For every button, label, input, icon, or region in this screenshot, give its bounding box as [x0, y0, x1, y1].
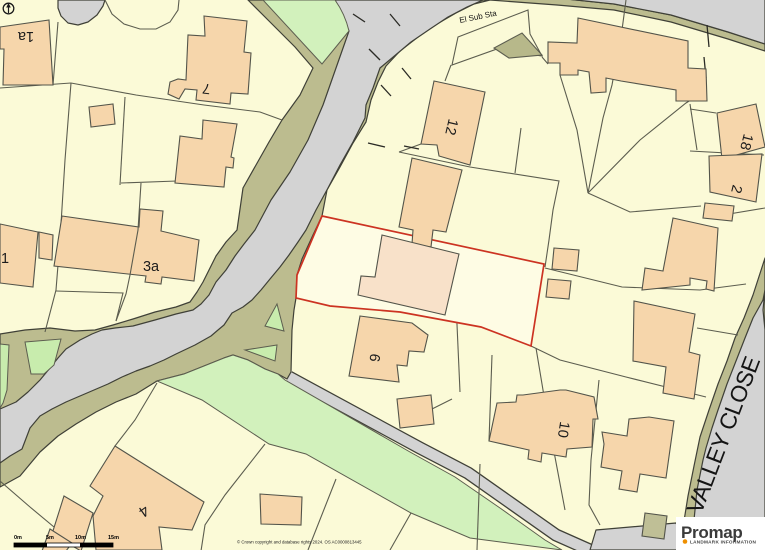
- svg-text:5m: 5m: [46, 535, 54, 541]
- svg-text:3a: 3a: [143, 259, 160, 275]
- svg-text:0m: 0m: [14, 535, 22, 541]
- svg-text:© Crown copyright and database: © Crown copyright and database rights 20…: [237, 540, 362, 545]
- svg-text:10m: 10m: [75, 535, 86, 541]
- svg-text:10: 10: [554, 420, 572, 438]
- svg-text:LANDMARK INFORMATION: LANDMARK INFORMATION: [690, 540, 756, 545]
- svg-text:1: 1: [1, 251, 9, 267]
- svg-text:15m: 15m: [108, 535, 119, 541]
- svg-text:1a: 1a: [17, 28, 34, 44]
